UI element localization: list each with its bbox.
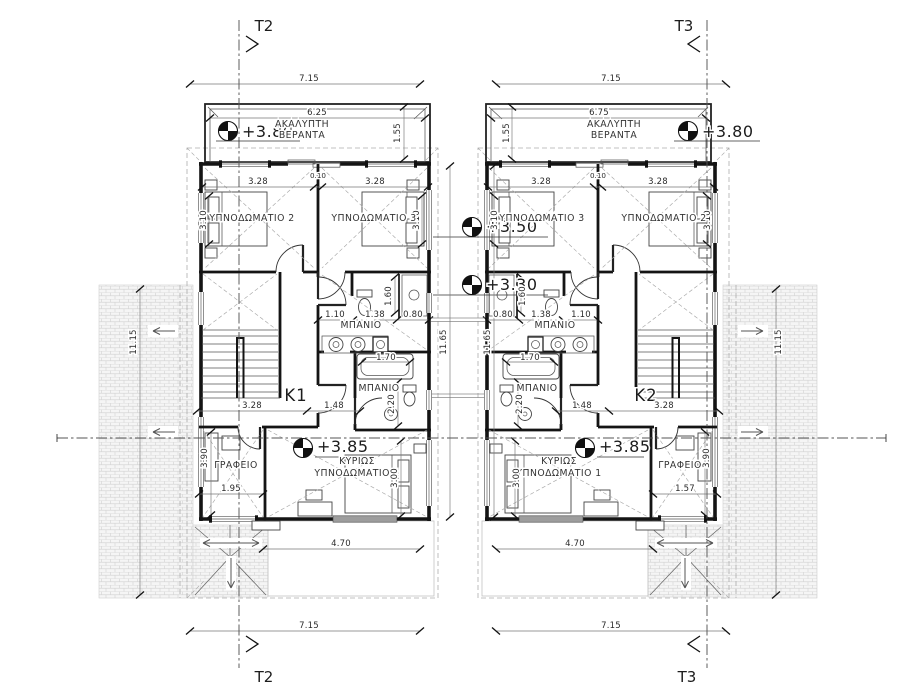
- dim-low-a: 3.28: [242, 401, 262, 411]
- dim-total-width-bottom: 7.15: [601, 621, 621, 631]
- dim-veranda-depth: 1.55: [393, 123, 403, 143]
- dim-bath-a: 1.10: [325, 310, 345, 320]
- dim-office-depth: 3.90: [200, 448, 210, 468]
- dim-bedroom3-width: 3.28: [365, 177, 385, 187]
- dim-bottom-width: 4.70: [565, 539, 585, 549]
- unit-label-k1: K1: [284, 386, 307, 405]
- room-label-bath-lower: ΜΠΑΝΙΟ: [358, 383, 399, 394]
- dim-veranda-depth: 1.55: [502, 123, 512, 143]
- dim-wall: 0.10: [590, 171, 606, 180]
- dim-bath-lower-depth: 2.20: [515, 394, 525, 414]
- room-label-veranda-2: ΒΕΡΑΝΤΑ: [279, 130, 326, 141]
- dim-bedroom2-width: 3.28: [248, 177, 268, 187]
- dim-wall: 0.10: [310, 171, 326, 180]
- room-label-bedroom2: ΥΠΝΟΔΩΜΑΤΙΟ 2: [208, 213, 294, 224]
- level-value: +3.85: [317, 437, 369, 456]
- room-label-bedroom3: ΥΠΝΟΔΩΜΑΤΙΟ 3: [498, 213, 584, 224]
- dim-shower-depth: 1.60: [518, 286, 528, 306]
- room-label-master-1: ΚΥΡΙΩΣ: [541, 456, 577, 467]
- dim-bottom-width: 4.70: [331, 539, 351, 549]
- level-value: +3.30: [486, 275, 538, 294]
- dim-bedroom2-depth: 3.10: [199, 210, 209, 230]
- room-label-master-2: ΥΠΝΟΔΩΜΑΤΙΟ 1: [515, 468, 601, 479]
- dim-shower-depth: 1.60: [384, 286, 394, 306]
- hip-roof-left: [193, 525, 268, 597]
- room-label-master-2: ΥΠΝΟΔΩΜΑΤΙΟ 1: [313, 468, 399, 479]
- dim-total-width-top: 7.15: [299, 74, 319, 84]
- roof-band-right: [723, 285, 817, 598]
- floor-plan-drawing: +3.80 +3.80 +3.50 +3.30 +3.85 +3.85 T2 T…: [0, 0, 916, 696]
- level-marker-floor-k2: +3.85: [576, 437, 651, 458]
- dim-total-width-bottom: 7.15: [299, 621, 319, 631]
- room-label-bedroom3: ΥΠΝΟΔΩΜΑΤΙΟ 3: [330, 213, 416, 224]
- dim-unit-depth: 11.65: [439, 329, 449, 354]
- dim-bath-lower-depth: 2.20: [387, 394, 397, 414]
- room-label-veranda-1: ΑΚΑΛΥΠΤΗ: [587, 119, 641, 130]
- dim-bedroom2-width: 3.28: [648, 177, 668, 187]
- dim-tub: 1.70: [520, 353, 540, 363]
- room-label-bath-lower: ΜΠΑΝΙΟ: [516, 383, 557, 394]
- room-label-office: ΓΡΑΦΕΙΟ: [214, 460, 258, 471]
- room-label-bath-upper: ΜΠΑΝΙΟ: [340, 320, 381, 331]
- level-value: +3.85: [599, 437, 651, 456]
- dim-bath-c: 0.80: [493, 310, 513, 320]
- dim-low-b: 1.48: [572, 401, 592, 411]
- dim-veranda-width: 6.25: [307, 108, 327, 118]
- dim-low-b: 1.48: [324, 401, 344, 411]
- dim-bath-c: 0.80: [403, 310, 423, 320]
- dim-unit-depth: 11.65: [483, 329, 493, 354]
- dim-office-width: 1.95: [221, 484, 241, 494]
- room-label-bedroom2: ΥΠΝΟΔΩΜΑΤΙΟ 2: [620, 213, 706, 224]
- dim-tub: 1.70: [376, 353, 396, 363]
- dim-master-depth: 3.00: [512, 468, 522, 488]
- room-label-bath-upper: ΜΠΑΝΙΟ: [534, 320, 575, 331]
- level-value: +3.80: [702, 122, 754, 141]
- dim-bath-a: 1.10: [571, 310, 591, 320]
- hip-roof-right: [648, 525, 723, 597]
- dim-office-depth: 3.90: [702, 448, 712, 468]
- floor-plan-page: +3.80 +3.80 +3.50 +3.30 +3.85 +3.85 T2 T…: [0, 0, 916, 696]
- room-label-office: ΓΡΑΦΕΙΟ: [658, 460, 702, 471]
- dim-bedroom3-width: 3.28: [531, 177, 551, 187]
- roof-band-left: [99, 285, 193, 598]
- dim-roof-side: 11.15: [774, 329, 784, 354]
- dim-veranda-width: 6.75: [589, 108, 609, 118]
- section-marker-t2-top: T2: [254, 17, 274, 35]
- level-marker-floor-k1: +3.85: [294, 437, 369, 458]
- dim-total-width-top: 7.15: [601, 74, 621, 84]
- room-label-veranda-1: ΑΚΑΛΥΠΤΗ: [275, 119, 329, 130]
- level-marker-veranda-k2: +3.80: [674, 122, 760, 142]
- dim-master-depth: 3.00: [390, 468, 400, 488]
- room-label-master-1: ΚΥΡΙΩΣ: [339, 456, 375, 467]
- section-marker-t2-bottom: T2: [254, 668, 274, 686]
- section-marker-t3-top: T3: [674, 17, 694, 35]
- dim-roof-side: 11.15: [129, 329, 139, 354]
- dim-bath-b: 1.38: [531, 310, 551, 320]
- dim-low-a: 3.28: [654, 401, 674, 411]
- room-label-veranda-2: ΒΕΡΑΝΤΑ: [591, 130, 638, 141]
- dim-office-width: 1.57: [675, 484, 695, 494]
- dim-bath-b: 1.38: [365, 310, 385, 320]
- section-marker-t3-bottom: T3: [677, 668, 697, 686]
